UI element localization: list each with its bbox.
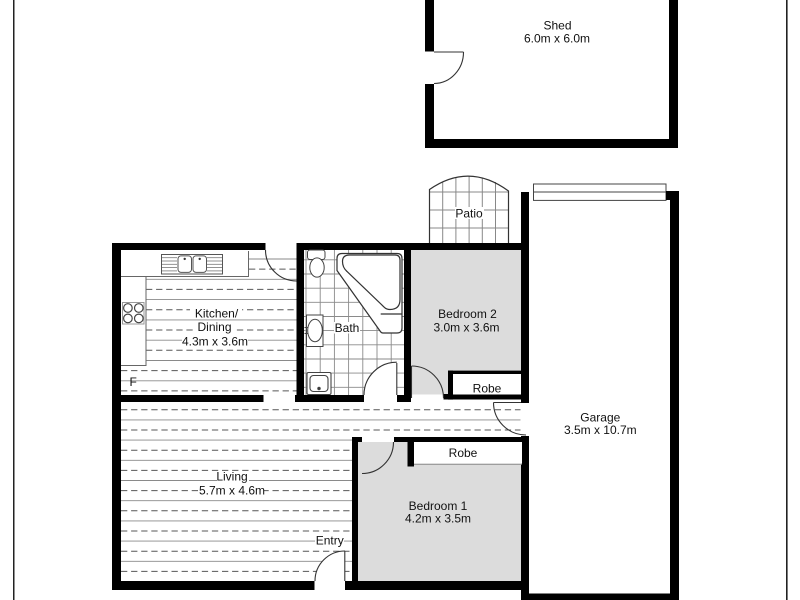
svg-text:Patio: Patio (455, 207, 483, 221)
svg-text:Living: Living (216, 470, 247, 484)
svg-text:Dining: Dining (197, 320, 231, 334)
svg-text:Bath: Bath (335, 321, 360, 335)
svg-text:F: F (130, 375, 137, 389)
svg-text:Robe: Robe (449, 446, 478, 460)
svg-text:3.5m x 10.7m: 3.5m x 10.7m (564, 423, 637, 437)
svg-text:Bedroom 2: Bedroom 2 (438, 307, 497, 321)
svg-text:4.3m x 3.6m: 4.3m x 3.6m (182, 334, 248, 348)
svg-text:Robe: Robe (473, 381, 502, 395)
svg-text:4.2m x 3.5m: 4.2m x 3.5m (405, 511, 471, 525)
svg-text:3.0m x 3.6m: 3.0m x 3.6m (433, 321, 499, 335)
svg-text:Kitchen/: Kitchen/ (195, 306, 239, 320)
svg-text:5.7m x 4.6m: 5.7m x 4.6m (199, 483, 265, 497)
svg-text:6.0m x 6.0m: 6.0m x 6.0m (524, 32, 590, 46)
svg-text:Shed: Shed (543, 19, 571, 33)
svg-text:Entry: Entry (316, 533, 344, 547)
